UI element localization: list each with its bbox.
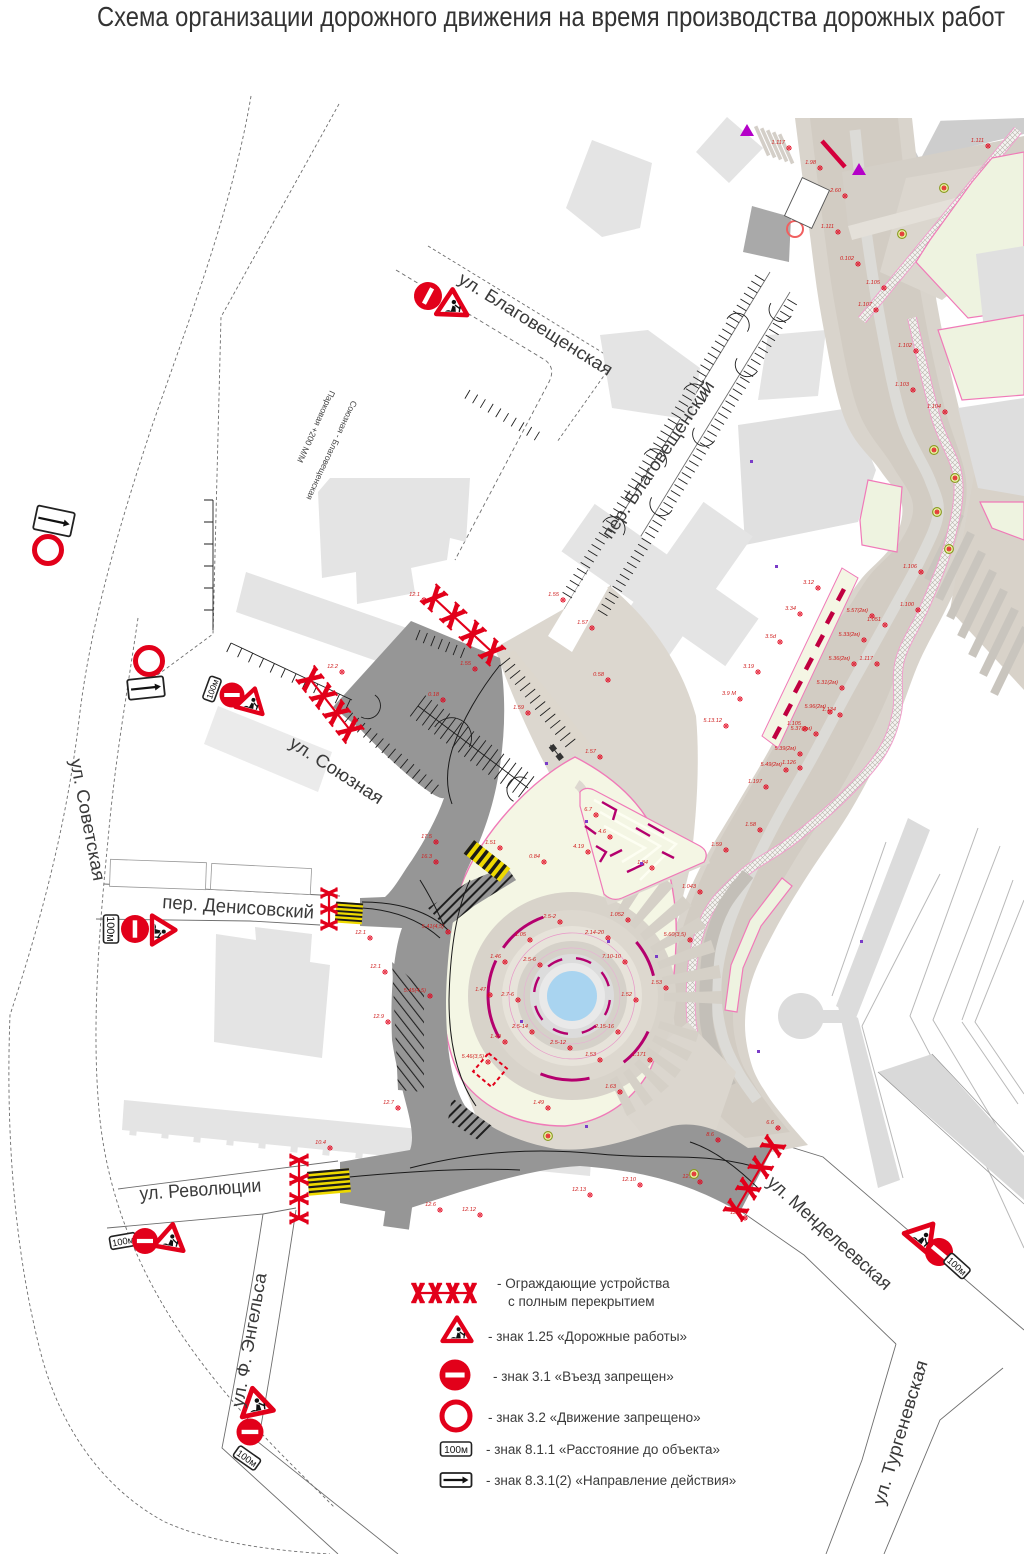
svg-text:16.3: 16.3	[421, 854, 433, 860]
svg-text:12.1: 12.1	[355, 930, 366, 936]
svg-text:5.36(2м): 5.36(2м)	[828, 656, 850, 662]
svg-text:5.45(4,5): 5.45(4,5)	[404, 988, 427, 994]
svg-text:1.051: 1.051	[867, 617, 881, 623]
svg-text:3.9 M: 3.9 M	[722, 691, 736, 697]
svg-text:12.13: 12.13	[572, 1187, 587, 1193]
svg-text:1.52: 1.52	[621, 992, 633, 998]
svg-text:0.102: 0.102	[840, 256, 855, 262]
svg-text:3.5d: 3.5d	[765, 634, 777, 640]
svg-text:- знак 8.1.1 «Расстояние до об: - знак 8.1.1 «Расстояние до объекта»	[486, 1442, 720, 1457]
svg-text:1.102: 1.102	[898, 343, 913, 349]
svg-text:1.043: 1.043	[682, 884, 697, 890]
svg-text:10.4: 10.4	[315, 1140, 326, 1146]
svg-text:5.13.12: 5.13.12	[703, 718, 723, 724]
svg-text:2.5-14: 2.5-14	[511, 1024, 528, 1030]
svg-text:1.51: 1.51	[485, 840, 496, 846]
svg-text:1.55: 1.55	[460, 661, 472, 667]
svg-text:1.107: 1.107	[858, 302, 873, 308]
svg-text:2.5-2: 2.5-2	[542, 914, 557, 920]
svg-text:1.171: 1.171	[632, 1052, 646, 1058]
svg-text:1.55: 1.55	[548, 592, 560, 598]
svg-text:5.39(2м): 5.39(2м)	[774, 746, 796, 752]
svg-text:2.5-12: 2.5-12	[549, 1040, 567, 1046]
svg-text:- знак 8.3.1(2) «Направление д: - знак 8.3.1(2) «Направление действия»	[486, 1473, 736, 1488]
svg-text:1.57: 1.57	[577, 620, 589, 626]
svg-text:5.96(2м): 5.96(2м)	[804, 704, 826, 710]
svg-text:5.31(2м): 5.31(2м)	[816, 680, 838, 686]
svg-text:1.53: 1.53	[651, 980, 663, 986]
svg-text:5.41(4,5): 5.41(4,5)	[422, 924, 445, 930]
svg-text:1.46: 1.46	[490, 954, 502, 960]
svg-text:1.98: 1.98	[805, 160, 817, 166]
svg-text:12.1: 12.1	[370, 964, 381, 970]
svg-text:5.60(3,5): 5.60(3,5)	[664, 932, 687, 938]
svg-text:1.117: 1.117	[771, 140, 785, 146]
svg-text:2.7-6: 2.7-6	[500, 992, 515, 998]
svg-text:1.197: 1.197	[748, 779, 763, 785]
svg-text:3.19: 3.19	[743, 664, 754, 670]
svg-text:100м: 100м	[444, 1445, 468, 1456]
svg-text:7.10-10: 7.10-10	[602, 954, 622, 960]
svg-text:Схема организации дорожного дв: Схема организации дорожного движения на …	[97, 1, 1005, 32]
svg-text:5.37(2м): 5.37(2м)	[790, 726, 812, 732]
svg-text:1.59: 1.59	[711, 842, 722, 848]
svg-text:1.111: 1.111	[821, 224, 834, 230]
svg-text:- знак 3.2 «Движение запрещено: - знак 3.2 «Движение запрещено»	[488, 1410, 701, 1425]
svg-text:1.58: 1.58	[745, 822, 757, 828]
svg-text:2.14-20: 2.14-20	[584, 930, 605, 936]
svg-text:4.19: 4.19	[573, 844, 584, 850]
svg-text:5.49(2м): 5.49(2м)	[760, 762, 782, 768]
svg-text:4.6: 4.6	[598, 829, 607, 835]
svg-text:17.5: 17.5	[421, 834, 433, 840]
svg-text:6.7: 6.7	[584, 807, 593, 813]
svg-text:5.46(3,5): 5.46(3,5)	[462, 1054, 485, 1060]
svg-text:1.05: 1.05	[515, 932, 527, 938]
svg-text:1.47: 1.47	[475, 987, 487, 993]
svg-text:2.5-6: 2.5-6	[522, 957, 537, 963]
svg-text:12.9: 12.9	[373, 1014, 384, 1020]
svg-text:12.6: 12.6	[425, 1202, 437, 1208]
svg-text:5.33(2м): 5.33(2м)	[838, 632, 860, 638]
svg-text:100м: 100м	[104, 916, 116, 941]
svg-text:0.58: 0.58	[593, 672, 605, 678]
svg-text:12.2: 12.2	[327, 664, 339, 670]
svg-text:6.6: 6.6	[766, 1120, 775, 1126]
svg-text:1.052: 1.052	[610, 912, 625, 918]
svg-text:12.10: 12.10	[622, 1177, 637, 1183]
svg-text:1.106: 1.106	[903, 564, 918, 570]
svg-text:1.117: 1.117	[859, 656, 873, 662]
svg-text:3.34: 3.34	[785, 606, 796, 612]
svg-text:0.18: 0.18	[428, 692, 440, 698]
svg-text:1.111: 1.111	[971, 138, 984, 144]
svg-text:0.84: 0.84	[529, 854, 540, 860]
svg-text:2.60: 2.60	[829, 188, 842, 194]
svg-text:1.53: 1.53	[585, 1052, 597, 1058]
svg-text:3.12: 3.12	[803, 580, 815, 586]
svg-text:1.103: 1.103	[895, 382, 910, 388]
svg-text:с полным перекрытием: с полным перекрытием	[508, 1294, 655, 1309]
svg-text:12.6: 12.6	[730, 1210, 742, 1216]
svg-text:- знак 3.1 «Въезд запрещен»: - знак 3.1 «Въезд запрещен»	[493, 1369, 674, 1384]
svg-text:- Ограждающие устройства: - Ограждающие устройства	[497, 1276, 670, 1291]
svg-text:1.100: 1.100	[900, 602, 915, 608]
svg-text:- знак 1.25 «Дорожные работы»: - знак 1.25 «Дорожные работы»	[488, 1329, 687, 1344]
svg-text:12.1: 12.1	[409, 592, 420, 598]
svg-text:1.49: 1.49	[533, 1100, 544, 1106]
svg-text:1.57: 1.57	[585, 749, 597, 755]
svg-text:1.126: 1.126	[782, 760, 797, 766]
svg-text:1.63: 1.63	[605, 1084, 617, 1090]
svg-text:12.12: 12.12	[462, 1207, 477, 1213]
svg-text:2.15-16: 2.15-16	[594, 1024, 615, 1030]
svg-text:1.59: 1.59	[513, 705, 524, 711]
svg-text:1.49: 1.49	[490, 1034, 501, 1040]
svg-text:1.105: 1.105	[866, 280, 881, 286]
svg-text:1.104: 1.104	[927, 404, 941, 410]
svg-text:8.6: 8.6	[706, 1132, 715, 1138]
svg-text:5.57(2м): 5.57(2м)	[846, 608, 868, 614]
svg-text:12.7: 12.7	[383, 1100, 395, 1106]
